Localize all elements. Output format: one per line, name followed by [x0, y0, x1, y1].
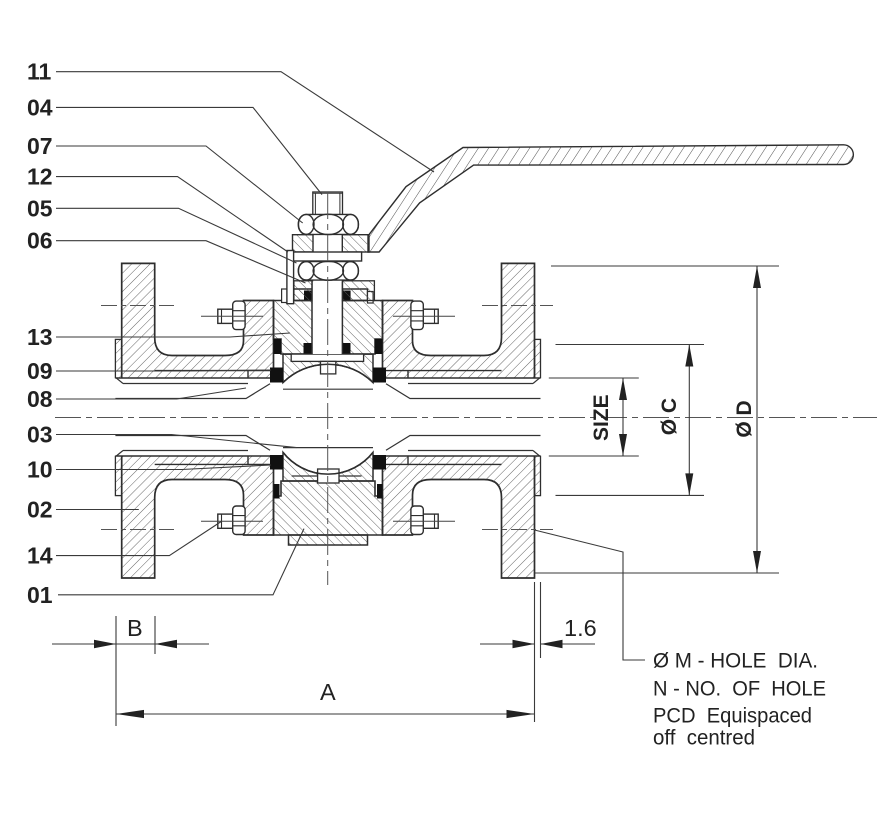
svg-text:14: 14 [27, 543, 53, 569]
svg-text:07: 07 [27, 133, 53, 159]
svg-text:05: 05 [27, 195, 53, 221]
svg-text:08: 08 [27, 386, 53, 412]
svg-text:B: B [127, 615, 143, 641]
svg-text:A: A [320, 679, 336, 705]
svg-text:11: 11 [27, 59, 52, 85]
svg-text:1.6: 1.6 [564, 615, 597, 641]
svg-text:03: 03 [27, 422, 53, 448]
svg-text:04: 04 [27, 94, 53, 120]
svg-text:Ø M - HOLE DIA.: Ø M - HOLE DIA. [653, 649, 818, 673]
svg-text:10: 10 [27, 457, 53, 483]
svg-text:02: 02 [27, 497, 53, 523]
svg-text:N - NO. OF HOLE: N - NO. OF HOLE [653, 677, 826, 701]
svg-text:Ø C: Ø C [658, 398, 681, 435]
svg-text:PCD Equispaced: PCD Equispaced [653, 704, 812, 728]
svg-text:13: 13 [27, 324, 53, 350]
svg-text:12: 12 [27, 164, 53, 190]
svg-text:SIZE: SIZE [590, 394, 613, 441]
svg-text:01: 01 [27, 582, 53, 608]
svg-text:09: 09 [27, 358, 53, 384]
svg-text:Ø D: Ø D [733, 400, 756, 437]
svg-text:off centred: off centred [653, 726, 755, 750]
svg-text:06: 06 [27, 228, 53, 254]
